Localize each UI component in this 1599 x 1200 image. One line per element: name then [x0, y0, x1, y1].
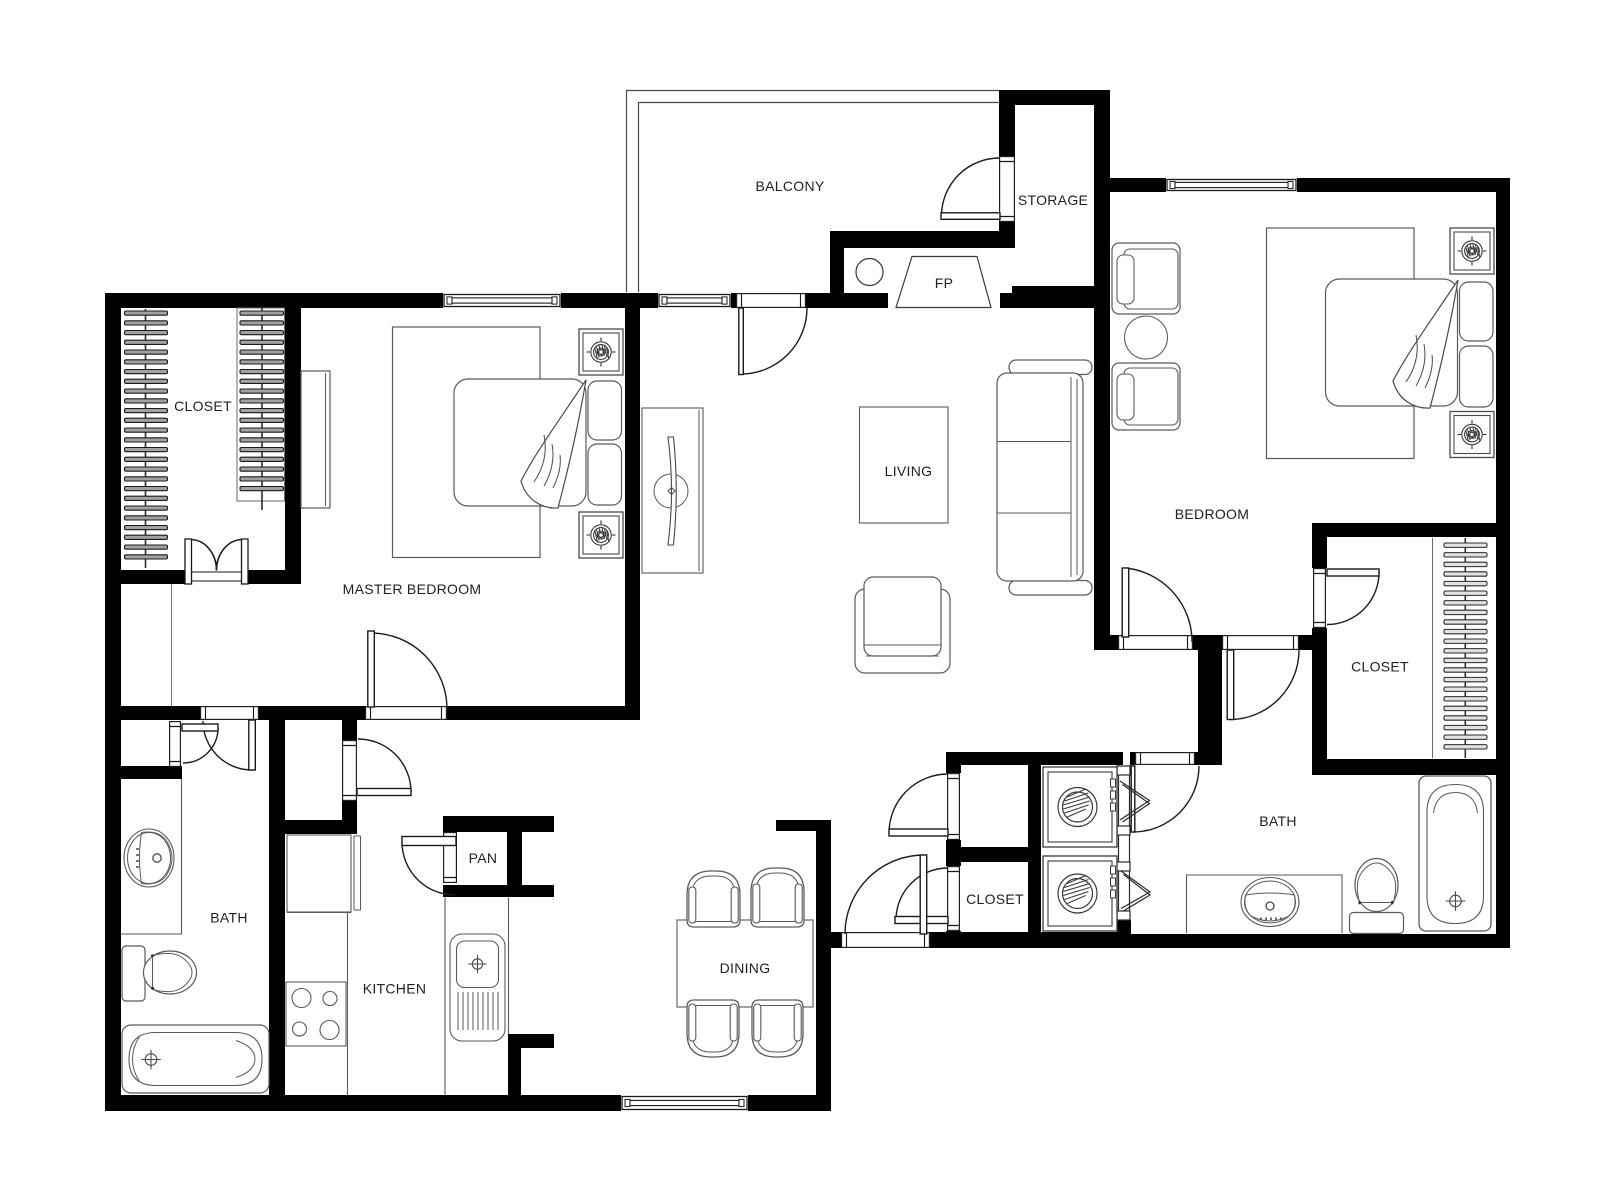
svg-text:STORAGE: STORAGE: [1018, 192, 1088, 208]
svg-text:MASTER BEDROOM: MASTER BEDROOM: [343, 581, 482, 597]
svg-text:BATH: BATH: [1259, 813, 1297, 829]
svg-text:CLOSET: CLOSET: [174, 398, 232, 414]
svg-text:BALCONY: BALCONY: [755, 178, 824, 194]
svg-text:BATH: BATH: [210, 910, 248, 926]
svg-text:BEDROOM: BEDROOM: [1175, 506, 1249, 522]
svg-text:KITCHEN: KITCHEN: [363, 981, 427, 997]
svg-text:CLOSET: CLOSET: [1351, 659, 1409, 675]
svg-text:LIVING: LIVING: [885, 463, 933, 479]
svg-text:FP: FP: [935, 275, 954, 291]
svg-text:PAN: PAN: [469, 850, 498, 866]
svg-text:CLOSET: CLOSET: [966, 891, 1024, 907]
svg-text:DINING: DINING: [720, 960, 771, 976]
